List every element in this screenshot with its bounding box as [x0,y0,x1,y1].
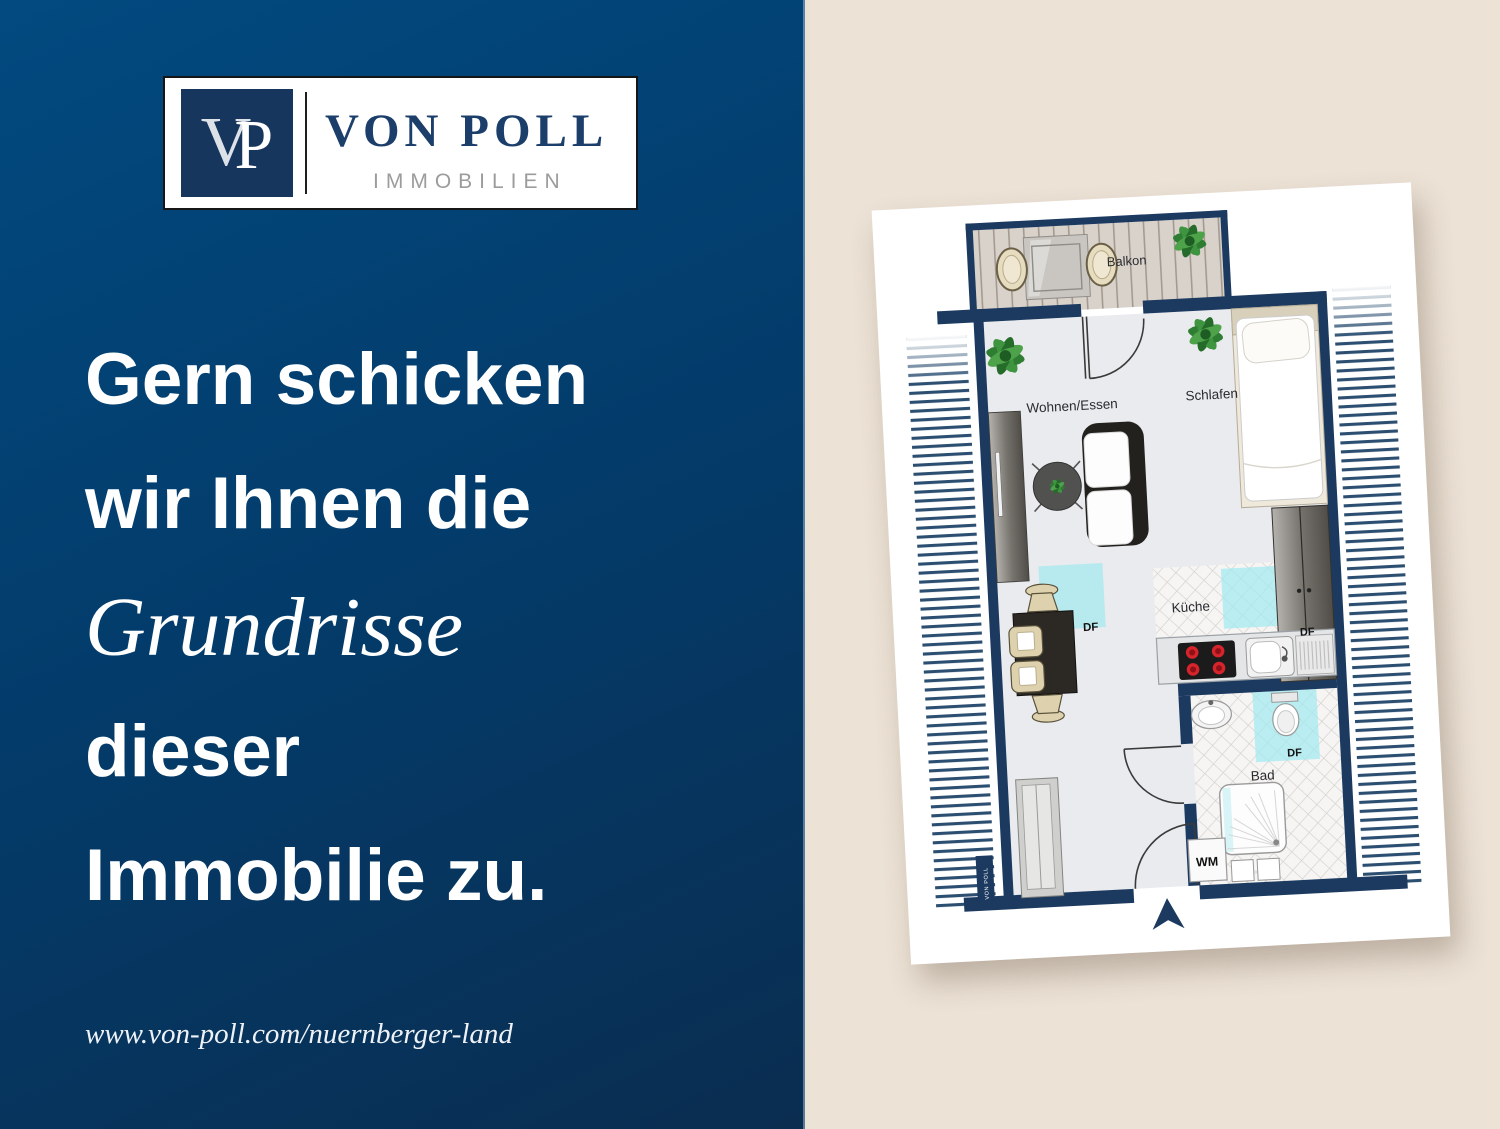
dining-chair [1010,660,1045,693]
floorplan-drawing: Balkon [872,182,1451,964]
brand-subtitle: IMMOBILIEN [373,170,567,194]
floorplan-sheet: Balkon [872,182,1451,964]
balcony-label: Balkon [1106,252,1146,269]
washing-machine: WM [1188,838,1227,882]
sleeping-label: Schlafen [1185,386,1238,404]
flyer: V P VON POLL IMMOBILIEN Gern schicken wi… [0,0,1500,1129]
vp-monogram: V P [181,89,293,197]
blue-panel: V P VON POLL IMMOBILIEN Gern schicken wi… [0,0,805,1129]
website-url: www.von-poll.com/nuernberger-land [85,1018,513,1051]
dining-chair [1009,625,1044,658]
kitchen-sink [1246,636,1295,677]
headline-line-3: Grundrisse [85,566,588,690]
drainboard [1295,634,1334,675]
bath-cabinet [1231,860,1254,882]
dining-chair [1027,592,1058,612]
brand-name: VON POLL [325,104,625,158]
headline-line-2: wir Ihnen die [85,442,588,566]
logo-divider [305,92,307,194]
headline: Gern schicken wir Ihnen die Grundrisse d… [85,318,588,938]
headline-line-5: Immobilie zu. [85,814,588,938]
vonpoll-logo: V P VON POLL IMMOBILIEN [163,76,638,210]
shelf-unit [1016,778,1064,898]
bath-label: Bad [1250,767,1275,783]
brand-watermark: VON POLL [976,855,995,904]
kitchen-label: Küche [1171,598,1210,615]
stove [1178,640,1237,680]
bed [1231,304,1327,507]
sofa [1081,421,1149,548]
balcony-table [1023,234,1090,299]
headline-line-1: Gern schicken [85,318,588,442]
toilet [1271,692,1299,736]
dining-chair [1032,694,1063,714]
skylight-label-bath: DF [1287,747,1303,760]
washing-machine-label: WM [1196,854,1219,869]
north-arrow-icon [1151,897,1185,930]
skylight-label-living: DF [1083,621,1099,634]
monogram-p: P [234,111,273,181]
shower [1219,782,1287,855]
beige-panel: Balkon [805,0,1500,1129]
bath-cabinet [1257,858,1280,880]
headline-line-4: dieser [85,690,588,814]
skylight-label-kitchen: DF [1300,626,1316,639]
